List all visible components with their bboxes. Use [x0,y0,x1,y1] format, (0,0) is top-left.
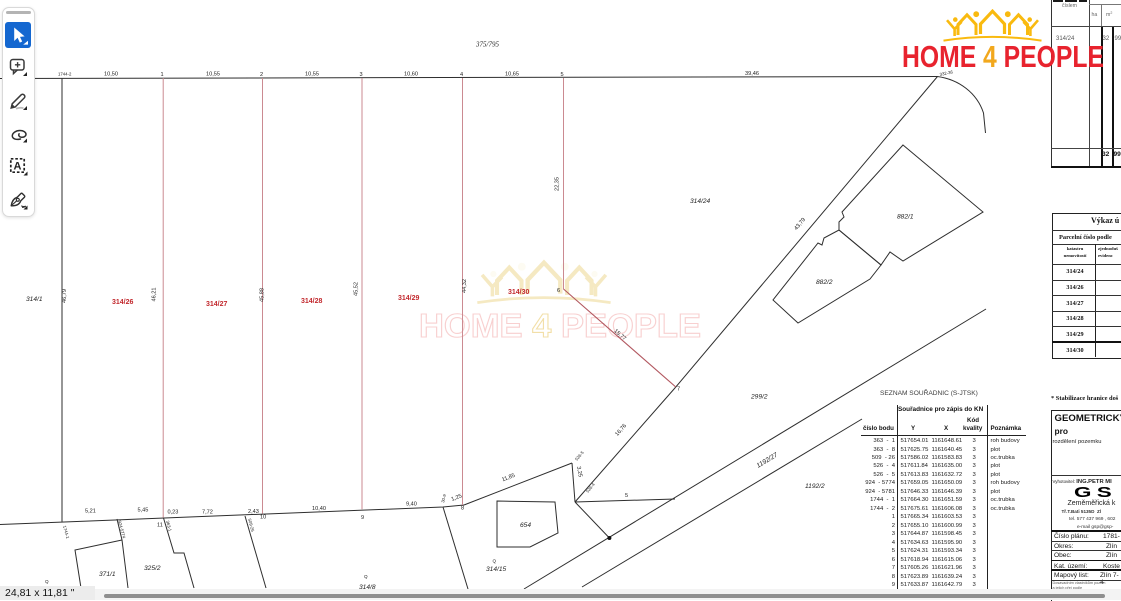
svg-text:882/1: 882/1 [897,214,914,221]
svg-text:314/30: 314/30 [508,289,530,296]
svg-text:0,23: 0,23 [168,510,179,516]
svg-text:314/28: 314/28 [301,298,323,305]
svg-text:46,79: 46,79 [62,289,68,303]
svg-text:6: 6 [557,288,560,294]
svg-text:10,60: 10,60 [404,72,418,78]
svg-text:1: 1 [161,72,164,78]
svg-text:325/2: 325/2 [144,565,161,572]
svg-text:7: 7 [677,387,680,393]
svg-text:43,79: 43,79 [793,217,807,232]
svg-text:314/1: 314/1 [26,296,43,303]
svg-text:375/795: 375/795 [475,41,499,49]
svg-text:11,85: 11,85 [501,473,516,483]
svg-text:9,40: 9,40 [406,502,417,508]
svg-text:3,25: 3,25 [575,466,583,478]
svg-text:314/24: 314/24 [690,198,711,205]
svg-text:314/26: 314/26 [112,299,134,306]
svg-text:45,88: 45,88 [260,288,266,302]
svg-text:314/15: 314/15 [486,566,507,573]
svg-text:924-5774: 924-5774 [117,520,127,539]
svg-text:Q: Q [45,579,49,584]
svg-text:9: 9 [361,515,364,521]
svg-text:2: 2 [260,72,263,78]
svg-text:526-4: 526-4 [585,482,596,494]
svg-text:1,25: 1,25 [451,493,463,503]
svg-text:10,65: 10,65 [505,72,519,78]
svg-text:5,21: 5,21 [85,509,96,515]
svg-text:1744-2: 1744-2 [58,72,72,77]
svg-text:A: A [14,161,22,173]
svg-text:10,40: 10,40 [312,506,326,512]
svg-text:10,50: 10,50 [104,72,118,78]
svg-text:299/2: 299/2 [750,394,768,401]
svg-text:314/27: 314/27 [206,301,228,308]
svg-text:16,76: 16,76 [614,423,628,438]
svg-text:22,35: 22,35 [555,177,561,191]
svg-text:10: 10 [260,515,266,521]
svg-text:371/1: 371/1 [99,571,116,578]
svg-text:39,46: 39,46 [745,71,759,77]
svg-text:1192/27: 1192/27 [755,452,779,470]
svg-text:5: 5 [625,493,628,499]
svg-text:30-9: 30-9 [440,493,447,503]
svg-text:5: 5 [561,72,564,78]
svg-text:882/2: 882/2 [816,279,833,286]
svg-text:HOME 4 PEOPLE: HOME 4 PEOPLE [902,40,1104,74]
svg-text:10,55: 10,55 [305,72,319,78]
svg-text:526-5: 526-5 [574,450,585,462]
svg-text:8: 8 [461,506,464,512]
svg-text:11: 11 [157,523,163,529]
svg-text:46,21: 46,21 [152,288,158,302]
svg-text:Q: Q [493,559,497,564]
svg-text:5,45: 5,45 [138,508,149,514]
svg-text:3: 3 [360,72,363,78]
svg-text:Q: Q [364,574,368,579]
svg-text:654: 654 [520,522,531,529]
svg-text:2,43: 2,43 [248,509,259,515]
svg-text:509-26: 509-26 [247,518,255,533]
svg-text:45,52: 45,52 [354,282,360,296]
svg-text:HOME 4 PEOPLE: HOME 4 PEOPLE [419,308,701,345]
svg-text:1744-1: 1744-1 [62,525,70,540]
svg-text:7,72: 7,72 [202,510,213,516]
svg-text:1192/2: 1192/2 [805,483,825,490]
svg-text:44,32: 44,32 [462,279,468,293]
svg-text:10,55: 10,55 [206,72,220,78]
svg-text:314/29: 314/29 [398,295,420,302]
svg-text:4: 4 [460,72,463,78]
